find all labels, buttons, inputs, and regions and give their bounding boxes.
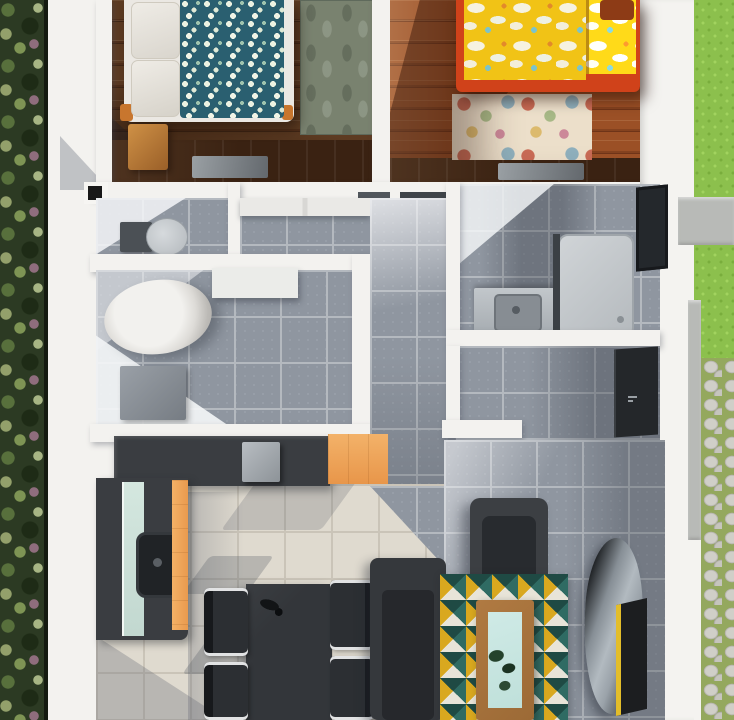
sink-drain	[153, 558, 162, 567]
basin-drain	[512, 306, 520, 314]
dining-chair-right-bottom	[330, 656, 374, 720]
countertop-appliance	[242, 442, 280, 482]
dining-chair-left-top	[204, 588, 248, 656]
bed-right-dark-cushion	[600, 0, 634, 20]
entrance-door	[614, 346, 658, 437]
kitchen-cabinet-orange-top	[328, 434, 388, 484]
shower-tray	[558, 234, 634, 338]
closet-wardrobe	[240, 198, 370, 216]
dining-chair-right-top	[330, 580, 374, 650]
bed-left-duvet	[180, 0, 284, 118]
tree-canopy-strip	[0, 0, 48, 720]
bathroom-left-wall	[446, 182, 460, 334]
bedroom-right-dresser-glass	[498, 163, 584, 180]
laundry-right-wall	[352, 254, 370, 442]
shower-door-edge	[553, 234, 560, 334]
bed-right-duvet	[464, 0, 586, 80]
entry-bottom-wall-stub	[442, 420, 522, 438]
bed-left-pillow-top	[131, 2, 180, 59]
bedroom-left-nightstand	[128, 124, 168, 170]
laundry-cabinet	[212, 268, 298, 298]
laundry-hamper-box	[120, 366, 186, 420]
wc-closet-divider-wall	[228, 182, 240, 262]
door-handle	[628, 396, 637, 398]
toilet-bowl	[146, 218, 188, 256]
kitchen-cabinet-orange-strip	[172, 480, 188, 630]
lawn-top	[694, 0, 734, 197]
dining-chair-left-bottom	[204, 662, 248, 720]
bathroom-window	[636, 184, 668, 271]
concrete-strip	[688, 300, 701, 540]
bedroom-left-wall	[96, 0, 112, 182]
living-sofa-seat	[382, 590, 434, 720]
shower-drain	[617, 316, 624, 323]
bedroom-right-rug	[452, 94, 592, 160]
cobblestone-path	[701, 358, 734, 720]
bedroom-divider-wall	[372, 0, 390, 182]
bedroom-left-rug	[300, 0, 373, 135]
floor-plan-render	[0, 0, 734, 720]
bathroom-bottom-wall	[446, 330, 660, 346]
door-handle-detail	[628, 400, 633, 402]
tv-panel	[616, 598, 647, 716]
bedroom-left-dresser-glass	[192, 156, 268, 178]
bed-left-pillow-bottom	[131, 60, 180, 117]
concrete-pad	[678, 197, 734, 245]
